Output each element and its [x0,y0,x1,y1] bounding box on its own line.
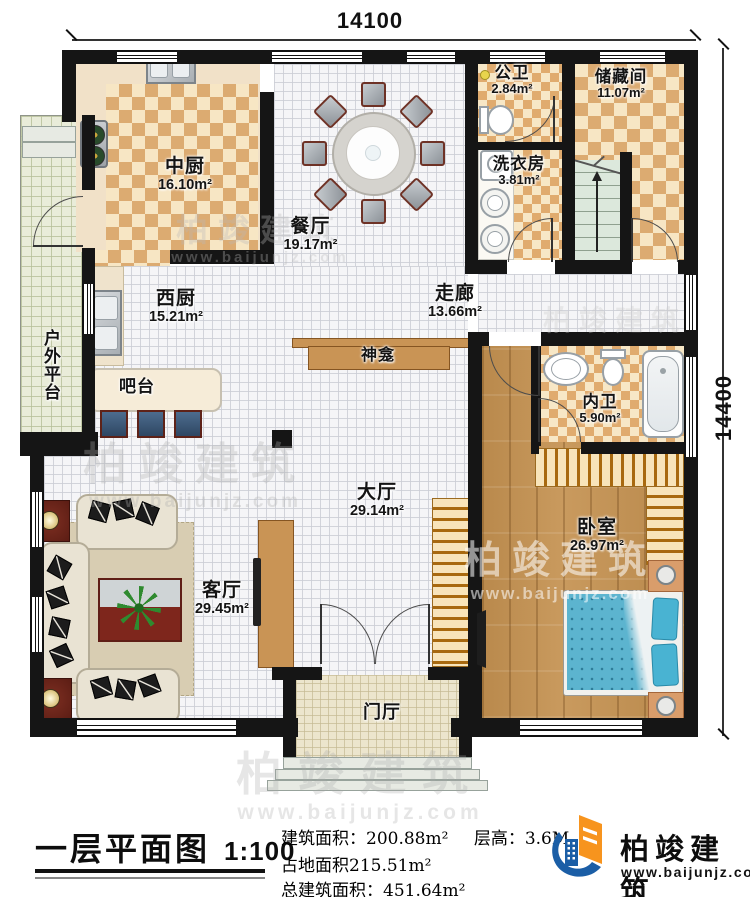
land-area: 占地面积215.51m² [281,856,431,876]
room-area: 3.81m² [473,173,565,188]
window [684,357,698,457]
foyer-step [283,757,472,769]
wall [30,547,44,597]
plan-title-text: 一层平面图 [35,831,210,867]
built-area: 建筑面积：200.88m² [281,829,448,849]
room-label-zhongchu: 中厨 16.10m² [125,156,245,194]
window [600,50,665,64]
wall [581,442,698,454]
wall [684,457,698,737]
wall [30,456,44,492]
dining-chair [420,141,445,166]
window [30,597,44,652]
foyer-step [267,780,488,791]
floor-plan-canvas: 14100 14400 [0,0,750,897]
bar-stool [174,410,202,438]
room-name: 门厅 [332,702,432,722]
room-label-xiyi: 洗衣房 3.81m² [473,155,565,188]
room-name: 大厅 [322,482,432,503]
nightstand-knob [656,696,676,716]
bed-pillow [651,643,679,686]
room-name: 西厨 [116,288,236,309]
wall [82,248,95,284]
sink-inner [551,358,581,380]
room-area: 16.10m² [125,177,245,193]
room-label-dating: 大厅 29.14m² [322,482,432,520]
window [520,718,642,737]
room-area: 15.21m² [116,309,236,325]
room-label-huwai: 户外平台 [32,290,60,440]
brand-logo [543,812,619,888]
room-area: 29.45m² [167,601,277,617]
window [684,275,698,330]
room-name: 洗衣房 [473,155,565,173]
room-name: 神龛 [308,347,448,365]
door-leaf [553,96,555,142]
pillow [112,498,135,521]
wall [451,718,520,737]
room-area: 19.17m² [258,237,363,253]
entry-door-right-leaf [428,604,430,664]
kitchen-passage-floor [95,250,170,266]
right-dimension-label: 14400 [711,363,737,453]
window [490,50,545,64]
room-label-keting: 客厅 29.45m² [167,580,277,618]
platform-step [22,126,76,142]
room-label-neiwei: 内卫 5.90m² [556,393,644,426]
window [117,50,177,64]
dining-chair [361,199,386,224]
info-line-3: 总建筑面积：451.64m² [281,876,465,897]
top-dimension-line [72,39,696,41]
stair-up-arrow-head [592,171,602,181]
room-label-shenkan: 神龛 [308,347,448,365]
room-label-menting: 门厅 [332,702,432,722]
wall [642,718,698,737]
bed-pillow [651,597,679,640]
basin-inner [487,195,503,211]
brand-website: www.baijunjz.com [621,864,750,880]
hall-closet [432,498,470,667]
door-leaf [33,245,83,247]
wall [62,50,76,122]
room-name: 卧室 [542,517,652,538]
bar-stool [137,410,165,438]
room-label-batai: 吧台 [92,377,182,396]
plant [117,586,161,630]
dining-chair [302,141,327,166]
dining-chair [361,82,386,107]
info-line-2: 占地面积215.51m² [281,851,431,876]
brand-logo-icon [543,812,619,882]
room-name: 中厨 [125,156,245,177]
room-name: 储藏间 [566,68,676,86]
wall [541,332,698,346]
wall [272,667,322,680]
door-leaf [631,218,633,262]
info-line-1: 建筑面积：200.88m² 层高：3.6M [281,824,569,849]
window [82,284,95,334]
dining-table-center [365,145,381,161]
window [272,50,362,64]
room-label-xichu: 西厨 15.21m² [116,288,236,326]
foyer-step [275,769,480,780]
total-built-area: 总建筑面积：451.64m² [281,881,465,897]
wall [684,50,698,275]
room-label-canting: 餐厅 19.17m² [258,216,363,254]
window [407,50,455,64]
sink-basin [94,296,118,320]
top-dimension-label: 14100 [300,8,440,34]
room-label-woshi: 卧室 26.97m² [542,517,652,555]
pillow [48,616,71,639]
entry-door-left-leaf [320,604,322,664]
wall [465,260,507,274]
title-underline-2 [35,877,265,879]
wall [82,115,95,190]
basin-inner [487,231,503,247]
platform-step [22,142,76,158]
stair-up-arrow-shaft [596,180,598,252]
brand-name: 柏竣建筑 [620,826,750,897]
door-leaf [551,218,553,262]
window [77,718,236,737]
room-area: 2.84m² [472,82,552,97]
room-label-gongwei: 公卫 2.84m² [472,64,552,97]
room-name: 户外平台 [41,290,60,440]
door-leaf [538,346,540,396]
room-label-zoulang: 走廊 13.66m² [400,283,510,321]
wall [468,332,489,346]
sink-basin [150,62,168,78]
room-name: 客厅 [167,580,277,601]
wall [30,718,77,737]
room-area: 29.14m² [322,503,432,519]
room-name: 内卫 [556,393,644,411]
room-name: 公卫 [472,64,552,82]
wall [531,442,539,454]
room-name: 餐厅 [258,216,363,237]
bed-sheet-fold [624,594,650,690]
room-name: 走廊 [400,283,510,304]
room-name: 吧台 [92,377,182,396]
room-area: 13.66m² [400,304,510,320]
column [272,430,292,448]
wall [465,142,562,150]
tv-bedroom [477,610,486,668]
room-area: 26.97m² [542,538,652,554]
room-label-chucang: 储藏间 11.07m² [566,68,676,101]
pillow [114,678,136,700]
room-area: 5.90m² [556,411,644,426]
room-area: 11.07m² [566,86,676,101]
door-leaf [538,398,540,442]
bar-stool [100,410,128,438]
sink-basin [94,326,118,350]
window [30,492,44,547]
bathtub-drain [660,368,666,374]
wall [283,667,296,757]
title-underline [35,869,265,873]
plan-title: 一层平面图1:100 [35,824,296,870]
nightstand-knob [656,565,676,585]
wall [678,260,698,274]
sink-basin [172,62,190,78]
toilet-bowl [602,358,624,386]
